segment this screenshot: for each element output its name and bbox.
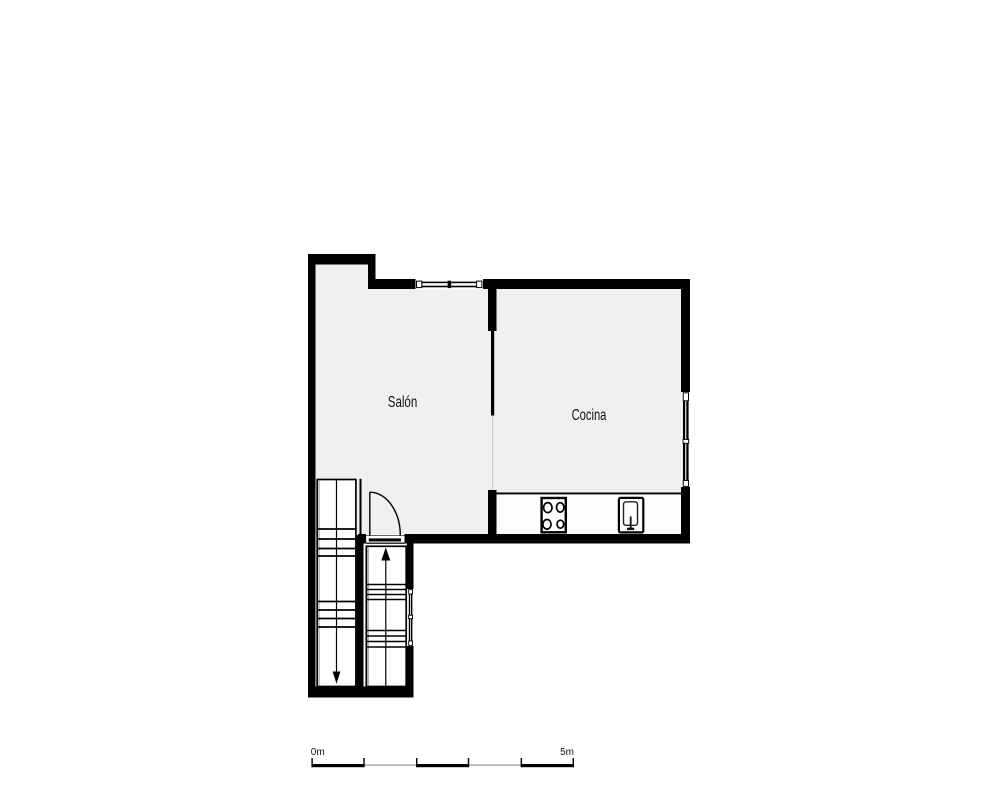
svg-text:Salón: Salón (388, 394, 418, 411)
svg-text:5m: 5m (560, 747, 574, 758)
svg-text:Cocina: Cocina (572, 407, 607, 424)
svg-text:0m: 0m (311, 747, 325, 758)
